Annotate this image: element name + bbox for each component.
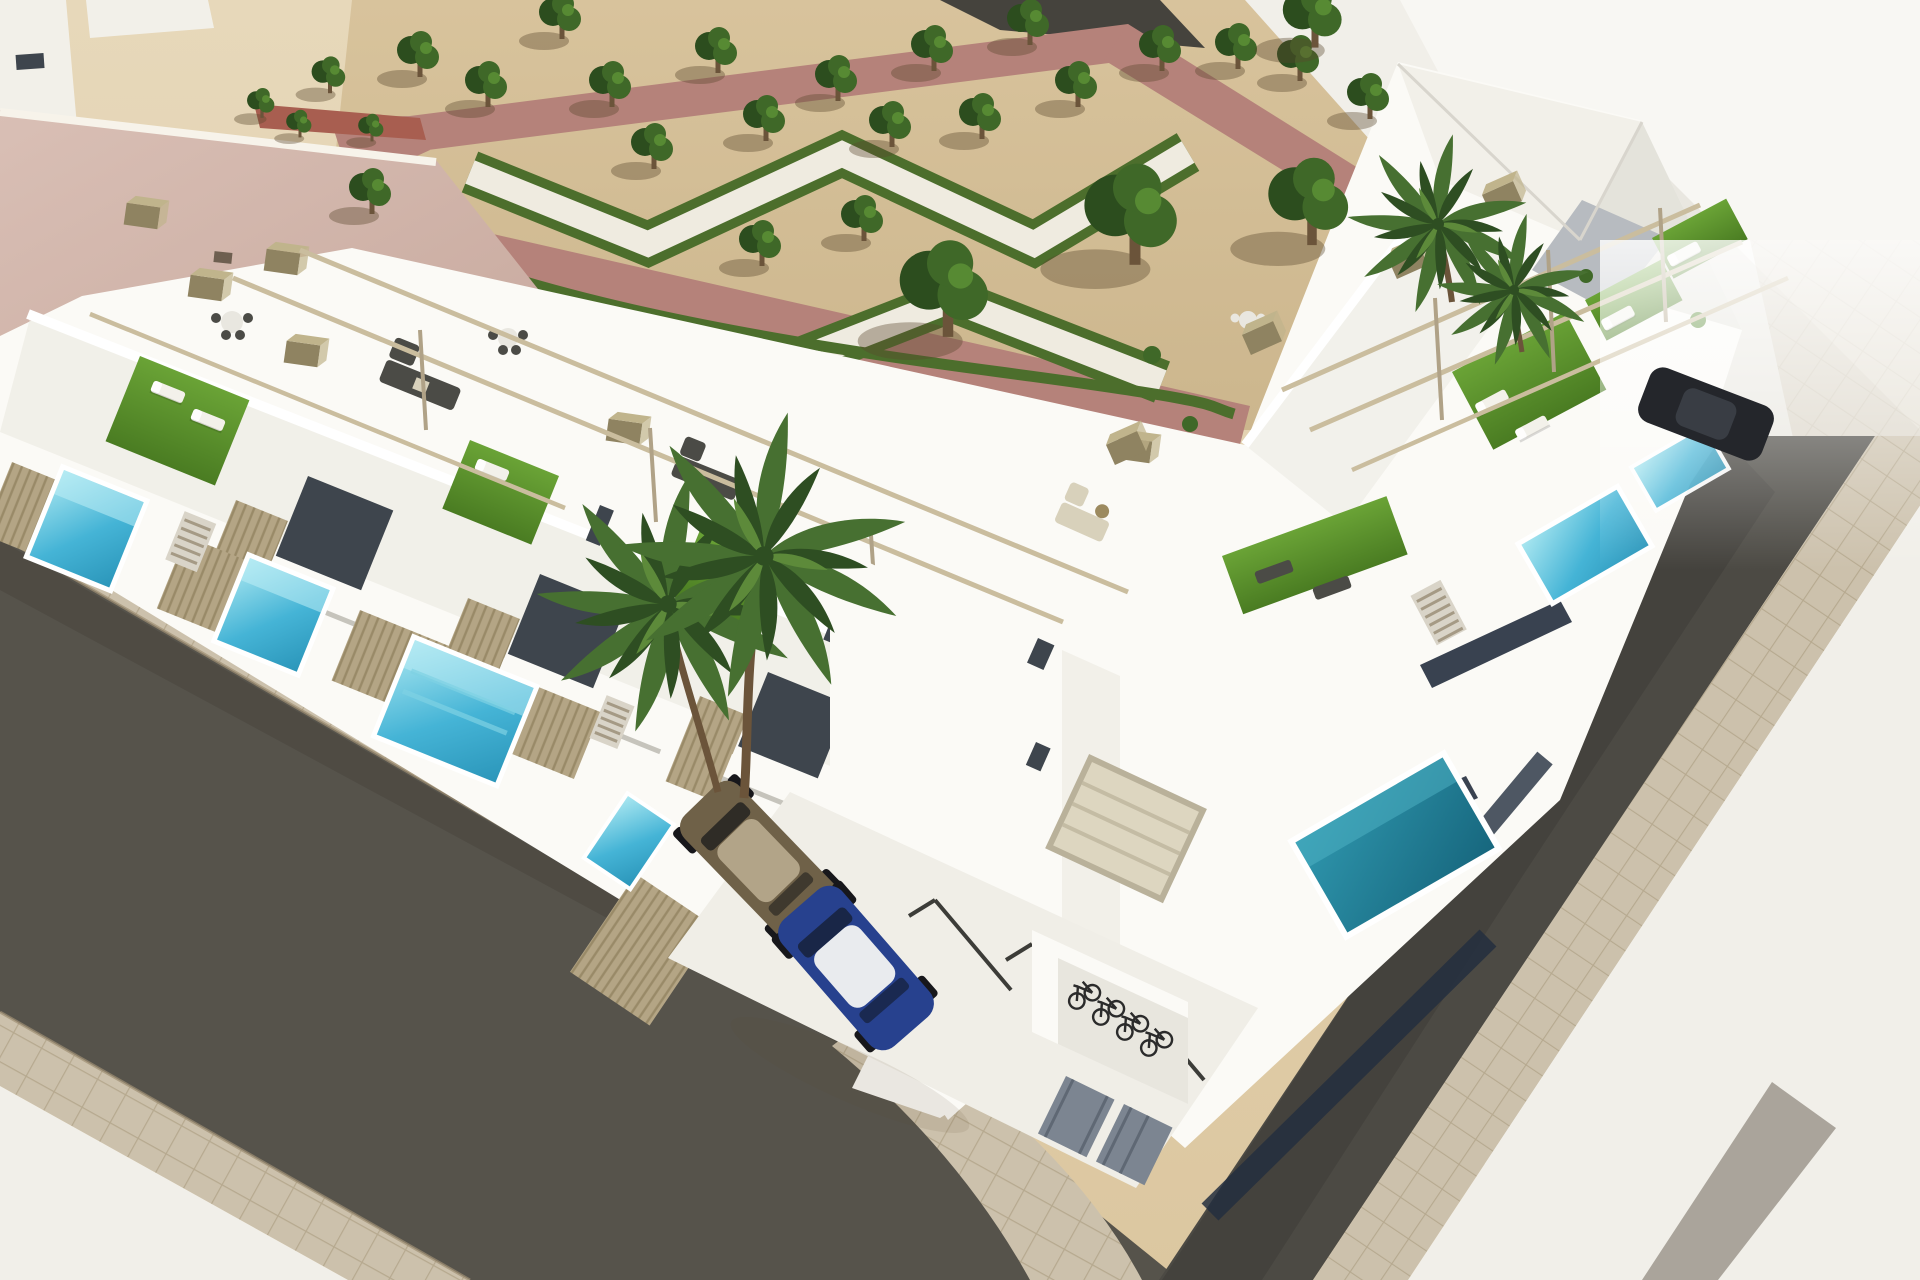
roof-vent: [213, 251, 232, 264]
potted-plant: [1182, 416, 1198, 432]
render-scene: Aerial 3D architectural render — modern …: [0, 0, 1920, 1280]
top-right-street: [1600, 240, 1920, 570]
potted-plant: [1143, 346, 1161, 364]
render-viewport: Aerial 3D architectural render — modern …: [0, 0, 1920, 1280]
neighbour-window: [16, 53, 45, 70]
